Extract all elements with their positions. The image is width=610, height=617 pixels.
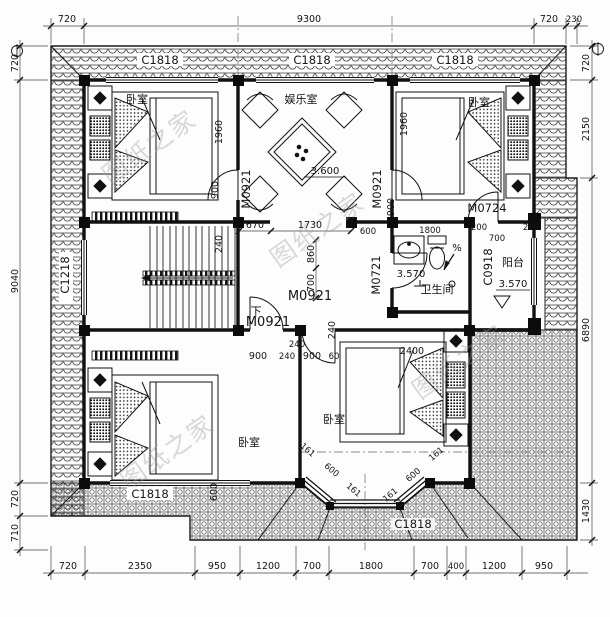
- window-c1818-top-right: [410, 77, 520, 84]
- dim-right-1430: 1430: [581, 499, 592, 523]
- dim-bay-161c: 161: [381, 486, 400, 504]
- label-c1818-top-middle: C1818: [293, 53, 330, 67]
- wardrobe: [508, 140, 528, 160]
- dim-bay-600: 600: [322, 461, 341, 479]
- dim-bed-1960-tr: 1960: [399, 112, 410, 136]
- dim-bottom-1800: 1800: [359, 561, 383, 572]
- level-balcony: 3.570: [499, 279, 528, 290]
- floor-plan-drawing: 图纸之家 图纸之家 图纸之家 图纸之家 720 9300 720 230 720…: [0, 0, 610, 617]
- label-m0921-left: M0921: [239, 169, 253, 208]
- dim-bottom-700: 700: [303, 561, 321, 572]
- label-m0921-hall: M0921: [288, 289, 332, 304]
- dim-row-2400: 2400: [400, 346, 424, 357]
- room-bedroom-tl: 卧室: [126, 92, 148, 106]
- wardrobe: [447, 392, 465, 418]
- dim-bottom-720: 720: [59, 561, 77, 572]
- dim-row-60: 60: [329, 352, 340, 362]
- toilet: [428, 236, 446, 269]
- label-m0724: M0724: [467, 201, 506, 215]
- label-c1818-bottom: C1818: [131, 487, 168, 501]
- stair-down-label: 下: [251, 305, 262, 318]
- wardrobe: [90, 140, 110, 160]
- dim-bottom-700b: 700: [421, 561, 439, 572]
- balcony-marks: [494, 290, 530, 308]
- dim-bottom-950b: 950: [535, 561, 553, 572]
- balustrade-strip-top: [92, 212, 178, 221]
- window-c1818-top-middle: [256, 77, 374, 84]
- dim-bottom-1200: 1200: [256, 561, 280, 572]
- dim-top-720: 720: [58, 14, 76, 25]
- room-balcony: 阳台: [502, 255, 524, 269]
- dim-right-2150: 2150: [581, 117, 592, 141]
- room-bathroom: 卫生间: [421, 282, 454, 296]
- wardrobe: [90, 422, 110, 442]
- label-c1818-bay: C1818: [394, 517, 431, 531]
- dim-right-6890: 6890: [581, 318, 592, 342]
- dim-left-720b: 720: [10, 490, 21, 508]
- dim-tr-260: 260: [523, 223, 539, 233]
- label-c1218: C1218: [58, 256, 72, 293]
- dim-bottom-400: 400: [448, 562, 464, 572]
- dim-bl-600: 600: [209, 483, 220, 501]
- room-bedroom-br: 卧室: [323, 412, 345, 426]
- dim-bed-900-tl: 900: [210, 181, 221, 199]
- dim-top-230: 230: [566, 15, 582, 25]
- dim-bottom-2350: 2350: [128, 561, 152, 572]
- dim-stair-240: 240: [214, 235, 225, 253]
- dim-left-9040: 9040: [10, 269, 21, 293]
- wardrobe: [90, 398, 110, 418]
- dim-bay-161b: 161: [344, 481, 363, 499]
- dim-row-240: 240: [279, 352, 295, 362]
- room-labels: 卧室 娱乐室 卧室 卫生间 阳台 卧室 卧室 下 3.600 3.570 3.5…: [126, 92, 527, 449]
- dim-top-720b: 720: [540, 14, 558, 25]
- dim-bath-1800: 1800: [419, 226, 441, 236]
- dim-hall-670: 670: [246, 220, 264, 231]
- watermark-text: 图纸之家: [97, 104, 202, 190]
- label-c1818-top-right: C1818: [436, 53, 473, 67]
- room-bedroom-bl: 卧室: [238, 435, 260, 449]
- dim-tr-700: 700: [489, 234, 505, 244]
- window-c0918-balcony: [531, 238, 538, 305]
- wardrobe: [90, 116, 110, 136]
- dim-bay-600b: 600: [404, 466, 423, 484]
- label-m0921-right: M0921: [370, 169, 384, 208]
- stairs: [92, 212, 235, 360]
- dim-hall-240-h: 240: [289, 340, 305, 350]
- window-c1218-left: [81, 240, 88, 315]
- dim-bed-1960-tl: 1960: [214, 120, 225, 144]
- label-c0918: C0918: [481, 248, 495, 285]
- balustrade-strip-bottom: [92, 351, 178, 360]
- dim-row-900a: 900: [249, 351, 267, 362]
- dim-right-720: 720: [581, 54, 592, 72]
- dim-hall-240-v: 240: [327, 321, 338, 339]
- level-entertainment: 3.600: [311, 166, 340, 177]
- dim-top-9300: 9300: [297, 14, 321, 25]
- level-bathroom: 3.570: [397, 269, 426, 280]
- room-bedroom-tr: 卧室: [468, 95, 490, 109]
- window-c1818-top-left: [106, 77, 218, 84]
- dim-left-710: 710: [10, 524, 21, 542]
- slope-percent-mark: %: [452, 243, 462, 254]
- dim-left-720: 720: [10, 54, 21, 72]
- wardrobe: [508, 116, 528, 136]
- dim-bottom-1200b: 1200: [482, 561, 506, 572]
- dim-bottom-950: 950: [208, 561, 226, 572]
- label-c1818-top-left: C1818: [141, 53, 178, 67]
- dim-bay-161d: 161: [427, 445, 446, 463]
- dim-bed-900-tr: 900: [386, 198, 397, 216]
- floor-plan-page: 图纸之家 图纸之家 图纸之家 图纸之家 720 9300 720 230 720…: [0, 0, 610, 617]
- dim-hall-1730: 1730: [298, 220, 322, 231]
- stair-railing: [143, 271, 235, 276]
- room-entertainment: 娱乐室: [285, 92, 318, 106]
- dim-hall-860: 860: [306, 245, 317, 263]
- dim-bath-600: 600: [360, 227, 376, 237]
- label-m0721: M0721: [369, 255, 383, 294]
- dim-row-900b: 900: [303, 351, 321, 362]
- dim-tr-200: 200: [471, 223, 487, 233]
